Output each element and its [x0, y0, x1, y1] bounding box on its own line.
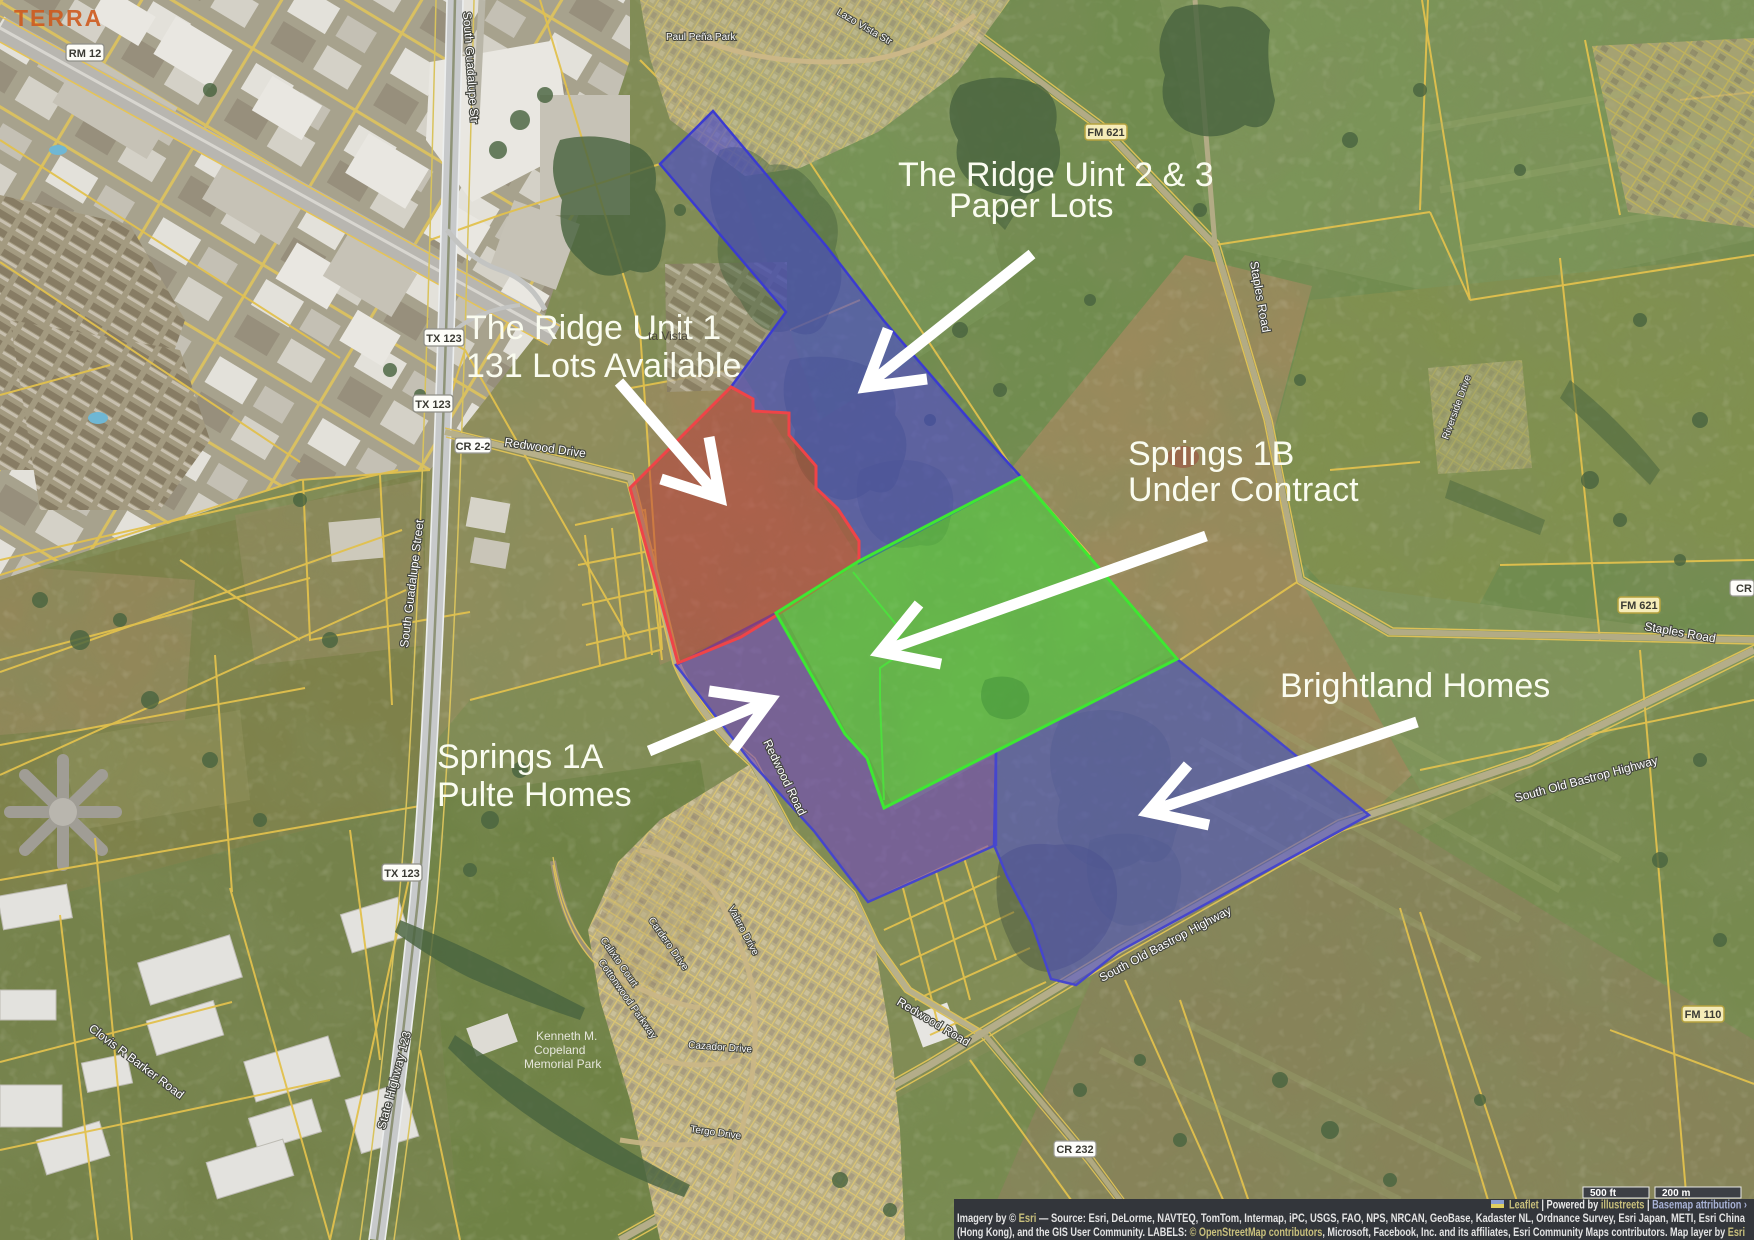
- svg-text:Under Contract: Under Contract: [1128, 471, 1359, 509]
- svg-text:FM 621: FM 621: [1620, 600, 1657, 612]
- svg-text:Imagery by © Esri — Source: Es: Imagery by © Esri — Source: Esri, DeLorm…: [957, 1211, 1745, 1225]
- svg-text:Paper Lots: Paper Lots: [949, 187, 1113, 225]
- svg-text:500 ft: 500 ft: [1590, 1188, 1617, 1199]
- svg-text:Springs 1A: Springs 1A: [437, 738, 604, 776]
- svg-text:Brightland Homes: Brightland Homes: [1280, 667, 1550, 705]
- svg-text:ta Vista: ta Vista: [648, 329, 688, 343]
- svg-text:TX 123: TX 123: [426, 333, 461, 345]
- svg-text:Copeland: Copeland: [534, 1043, 585, 1057]
- svg-text:FM 110: FM 110: [1685, 1009, 1722, 1021]
- svg-text:Memorial Park: Memorial Park: [524, 1057, 602, 1071]
- svg-text:TERRA: TERRA: [14, 5, 103, 31]
- svg-text:131 Lots Available: 131 Lots Available: [466, 347, 741, 385]
- svg-text:FM 621: FM 621: [1087, 127, 1124, 139]
- svg-text:TX 123: TX 123: [415, 399, 450, 411]
- svg-text:CR 232: CR 232: [1056, 1144, 1093, 1156]
- svg-text:200 m: 200 m: [1662, 1188, 1690, 1199]
- svg-text:Springs 1B: Springs 1B: [1128, 435, 1294, 473]
- svg-text:CR 2-2: CR 2-2: [456, 441, 491, 453]
- svg-text:(Hong Kong), and the GIS User: (Hong Kong), and the GIS User Community.…: [957, 1225, 1745, 1239]
- svg-text:CR: CR: [1736, 583, 1752, 595]
- svg-text:Leaflet | Powered by illustree: Leaflet | Powered by illustreets | Basem…: [1509, 1200, 1747, 1212]
- svg-text:RM 12: RM 12: [69, 48, 101, 60]
- svg-text:TX 123: TX 123: [384, 868, 419, 880]
- svg-text:Pulte Homes: Pulte Homes: [437, 776, 632, 814]
- svg-text:Paul Peña Park: Paul Peña Park: [666, 32, 736, 43]
- svg-text:Kenneth M.: Kenneth M.: [536, 1029, 597, 1043]
